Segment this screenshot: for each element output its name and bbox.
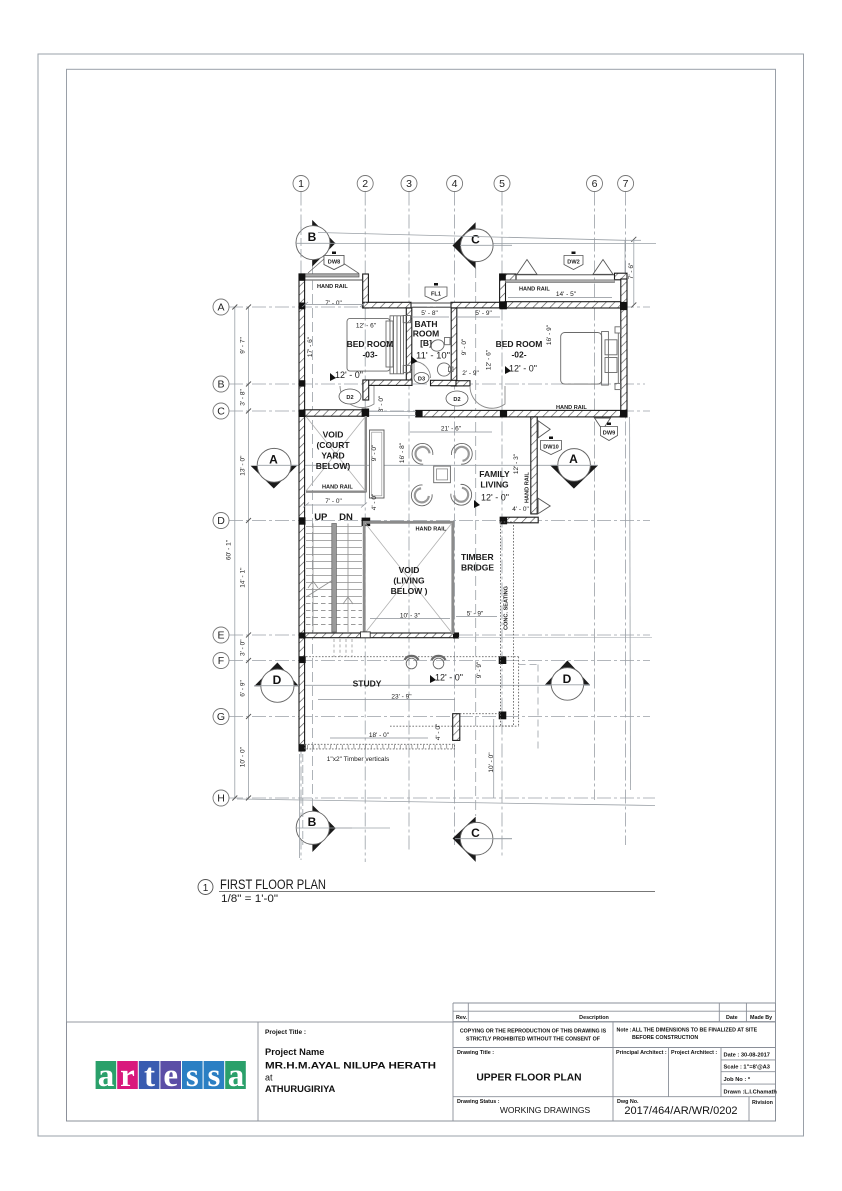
svg-text:Date: Date xyxy=(726,1015,738,1021)
svg-text:G: G xyxy=(217,711,225,723)
svg-text:D2: D2 xyxy=(346,395,353,401)
svg-text:7' - 6": 7' - 6" xyxy=(628,262,635,279)
svg-text:16' - 8": 16' - 8" xyxy=(399,442,406,463)
svg-text:9' - 0": 9' - 0" xyxy=(371,444,378,461)
svg-text:ATHURUGIRIYA: ATHURUGIRIYA xyxy=(265,1083,336,1094)
svg-text:FL1: FL1 xyxy=(431,292,441,298)
svg-text:HAND RAIL: HAND RAIL xyxy=(317,284,348,290)
svg-text:(COURT: (COURT xyxy=(316,440,350,450)
svg-text:10' - 0": 10' - 0" xyxy=(488,752,495,773)
svg-text:Project Name: Project Name xyxy=(265,1047,324,1057)
svg-text:5' - 9": 5' - 9" xyxy=(475,310,492,317)
svg-text:12' - 6": 12' - 6" xyxy=(356,323,377,330)
svg-text:CONC. SEATING: CONC. SEATING xyxy=(504,586,510,630)
svg-text:21' - 6": 21' - 6" xyxy=(441,426,462,433)
svg-text:17' - 6": 17' - 6" xyxy=(307,336,314,357)
svg-text:5: 5 xyxy=(499,178,505,190)
svg-text:3' - 8": 3' - 8" xyxy=(240,389,247,406)
svg-text:D2: D2 xyxy=(453,397,460,403)
svg-text:DW8: DW8 xyxy=(328,260,340,266)
svg-text:Rev.: Rev. xyxy=(456,1015,467,1021)
svg-text:A: A xyxy=(269,453,278,467)
svg-text:Date : 30-08-2017: Date : 30-08-2017 xyxy=(724,1053,770,1059)
svg-text:s: s xyxy=(186,1058,199,1094)
svg-text:4: 4 xyxy=(452,178,458,190)
svg-text:LIVING: LIVING xyxy=(480,480,509,490)
svg-text:HAND RAIL: HAND RAIL xyxy=(525,472,531,503)
svg-text:UPPER FLOOR PLAN: UPPER FLOOR PLAN xyxy=(476,1073,581,1084)
svg-text:9' - 7": 9' - 7" xyxy=(240,337,247,354)
svg-text:Project Title :: Project Title : xyxy=(265,1029,306,1036)
svg-text:Scale : 1"=8'@A3: Scale : 1"=8'@A3 xyxy=(724,1065,770,1071)
svg-text:Principal Architect :: Principal Architect : xyxy=(616,1050,667,1056)
svg-text:e: e xyxy=(163,1058,178,1094)
svg-text:B: B xyxy=(308,230,317,244)
svg-text:60' - 1": 60' - 1" xyxy=(226,539,233,560)
svg-text:12' - 3": 12' - 3" xyxy=(513,453,520,474)
svg-text:[B]: [B] xyxy=(420,338,432,348)
svg-text:HAND RAIL: HAND RAIL xyxy=(556,405,587,411)
svg-text:Project Architect :: Project Architect : xyxy=(671,1050,717,1056)
svg-text:F: F xyxy=(218,655,224,667)
svg-text:5' - 8": 5' - 8" xyxy=(421,310,438,317)
svg-text:2' - 9": 2' - 9" xyxy=(462,370,479,377)
svg-text:D: D xyxy=(563,672,572,686)
svg-text:Note :: Note : xyxy=(617,1028,632,1034)
svg-text:DN: DN xyxy=(339,512,353,523)
svg-text:11' - 10": 11' - 10" xyxy=(416,351,450,362)
svg-text:C: C xyxy=(471,233,480,247)
svg-text:TIMBER: TIMBER xyxy=(461,552,494,562)
svg-text:D: D xyxy=(273,673,282,687)
svg-text:D: D xyxy=(217,515,225,527)
svg-text:UP: UP xyxy=(314,512,328,523)
svg-text:E: E xyxy=(217,630,224,642)
svg-text:FAMILY: FAMILY xyxy=(479,469,510,479)
svg-text:3' - 0": 3' - 0" xyxy=(240,639,247,656)
svg-text:HAND RAIL: HAND RAIL xyxy=(519,287,550,293)
svg-text:12' - 0": 12' - 0" xyxy=(435,673,463,683)
svg-text:STRICTLY PROHIBITED WITHOUT TH: STRICTLY PROHIBITED WITHOUT THE CONSENT … xyxy=(466,1037,601,1043)
svg-text:1"x2" Timber verticals: 1"x2" Timber verticals xyxy=(327,756,390,763)
svg-text:Drawing Title :: Drawing Title : xyxy=(457,1050,494,1056)
svg-text:YARD: YARD xyxy=(321,451,344,461)
svg-text:14' - 1": 14' - 1" xyxy=(240,567,247,588)
svg-text:1: 1 xyxy=(203,883,209,894)
svg-text:VOID: VOID xyxy=(399,565,420,575)
svg-text:DW10: DW10 xyxy=(543,445,559,451)
svg-text:HAND RAIL: HAND RAIL xyxy=(416,527,447,533)
svg-text:9' - 9": 9' - 9" xyxy=(476,661,483,678)
svg-text:2: 2 xyxy=(362,178,368,190)
svg-text:ALL THE DIMENSIONS TO BE FINAL: ALL THE DIMENSIONS TO BE FINALIZED AT SI… xyxy=(632,1028,758,1034)
svg-text:A: A xyxy=(569,452,578,466)
svg-text:BELOW): BELOW) xyxy=(316,461,351,471)
svg-text:C: C xyxy=(217,406,225,418)
svg-text:WORKING DRAWINGS: WORKING DRAWINGS xyxy=(500,1105,591,1115)
svg-text:1: 1 xyxy=(298,178,304,190)
svg-text:DW9: DW9 xyxy=(603,431,615,437)
svg-text:12' - 0": 12' - 0" xyxy=(509,364,537,374)
svg-text:VOID: VOID xyxy=(323,430,344,440)
svg-text:A: A xyxy=(217,302,224,314)
svg-text:12' - 6": 12' - 6" xyxy=(486,349,493,370)
svg-text:14' - 5": 14' - 5" xyxy=(556,291,577,298)
svg-text:COPYING OR THE REPRODUCTION OF: COPYING OR THE REPRODUCTION OF THIS DRAW… xyxy=(460,1029,607,1035)
svg-text:t: t xyxy=(144,1058,155,1094)
svg-text:6' - 9": 6' - 9" xyxy=(240,680,247,697)
svg-text:at: at xyxy=(265,1073,273,1083)
svg-text:STUDY: STUDY xyxy=(353,679,382,689)
svg-text:C: C xyxy=(471,826,480,840)
svg-text:7' - 0": 7' - 0" xyxy=(325,300,342,307)
svg-text:Job No : *: Job No : * xyxy=(724,1077,751,1083)
svg-text:6: 6 xyxy=(592,178,598,190)
svg-text:12' - 0": 12' - 0" xyxy=(481,493,509,503)
svg-text:-02-: -02- xyxy=(511,350,526,360)
svg-text:FIRST FLOOR PLAN: FIRST FLOOR PLAN xyxy=(220,877,326,892)
svg-text:a: a xyxy=(98,1058,115,1094)
svg-text:7: 7 xyxy=(623,178,629,190)
svg-text:s: s xyxy=(207,1058,220,1094)
svg-text:BEFORE CONSTRUCTION: BEFORE CONSTRUCTION xyxy=(632,1035,698,1041)
svg-text:9' - 0": 9' - 0" xyxy=(461,338,468,355)
svg-text:-03-: -03- xyxy=(362,350,377,360)
svg-text:4' - 0": 4' - 0" xyxy=(435,723,442,740)
svg-text:BELOW ): BELOW ) xyxy=(391,586,428,596)
svg-text:(LIVING: (LIVING xyxy=(393,576,425,586)
svg-text:10' - 0": 10' - 0" xyxy=(240,746,247,767)
svg-text:BED ROOM: BED ROOM xyxy=(347,339,394,349)
svg-text:HAND RAIL: HAND RAIL xyxy=(322,485,353,491)
svg-text:2017/464/AR/WR/0202: 2017/464/AR/WR/0202 xyxy=(624,1105,737,1117)
svg-text:13' - 0": 13' - 0" xyxy=(240,455,247,476)
svg-text:BRIDGE: BRIDGE xyxy=(461,563,494,573)
svg-text:12' - 0": 12' - 0" xyxy=(335,370,363,380)
svg-text:BATH: BATH xyxy=(415,319,438,329)
svg-text:a: a xyxy=(228,1058,245,1094)
svg-text:4' - 0": 4' - 0" xyxy=(371,493,378,510)
svg-text:16' - 9": 16' - 9" xyxy=(546,324,553,345)
svg-text:r: r xyxy=(120,1058,135,1094)
svg-text:ROOM: ROOM xyxy=(413,329,439,339)
svg-text:7' - 0": 7' - 0" xyxy=(325,498,342,505)
svg-text:Rivision: Rivision xyxy=(752,1100,773,1106)
svg-text:Made By: Made By xyxy=(750,1015,772,1021)
svg-text:B: B xyxy=(308,815,317,829)
svg-text:DW2: DW2 xyxy=(567,260,579,266)
svg-text:1/8" = 1'-0": 1/8" = 1'-0" xyxy=(221,893,278,905)
svg-text:BED ROOM: BED ROOM xyxy=(496,339,543,349)
svg-text:3' - 0": 3' - 0" xyxy=(378,395,385,412)
svg-text:MR.H.M.AYAL NILUPA HERATH: MR.H.M.AYAL NILUPA HERATH xyxy=(265,1061,436,1072)
svg-text:Drawn :L.I.Chamath: Drawn :L.I.Chamath xyxy=(724,1090,778,1096)
svg-text:Description: Description xyxy=(579,1015,609,1021)
svg-text:H: H xyxy=(217,793,225,805)
svg-text:3: 3 xyxy=(406,178,412,190)
svg-text:B: B xyxy=(217,379,224,391)
svg-text:4' - 0": 4' - 0" xyxy=(512,506,529,513)
svg-text:D3: D3 xyxy=(418,377,425,383)
svg-text:Drawing Status :: Drawing Status : xyxy=(457,1099,500,1105)
